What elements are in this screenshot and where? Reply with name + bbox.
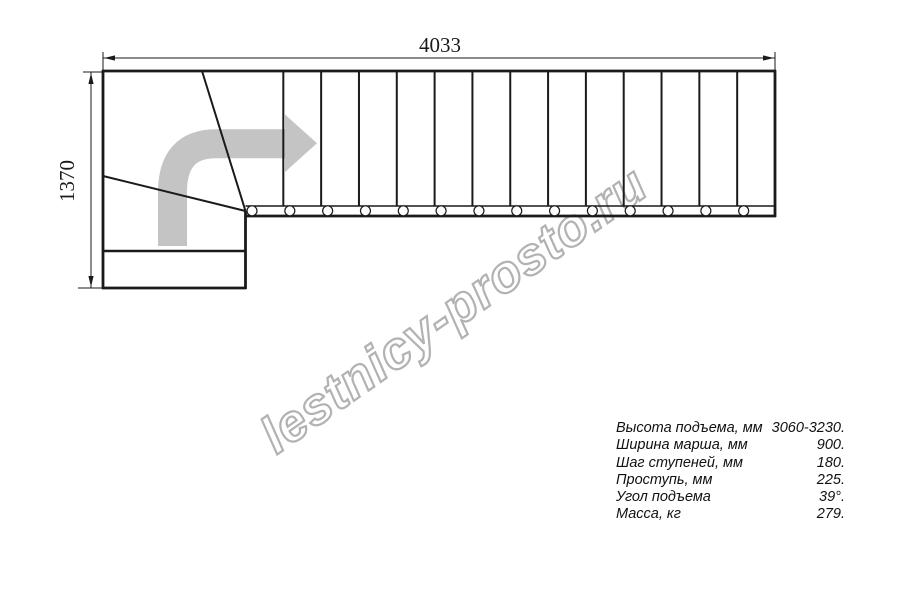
baluster-circle (739, 206, 749, 216)
spec-value: 225. (817, 472, 845, 489)
spec-row-tread: Проступь, мм 225. (616, 472, 845, 489)
dimension-width: 4033 (103, 33, 775, 71)
baluster-circle (701, 206, 711, 216)
dimension-height-label: 1370 (55, 160, 79, 202)
spec-value: 39°. (819, 489, 845, 506)
spec-label: Высота подъема, мм (616, 420, 763, 437)
dimension-width-label: 4033 (419, 33, 461, 57)
baluster-circle (360, 206, 370, 216)
baluster-circle (663, 206, 673, 216)
spec-row-mass: Масса, кг 279. (616, 506, 845, 523)
baluster-circle (436, 206, 446, 216)
spec-row-step-pitch: Шаг ступеней, мм 180. (616, 455, 845, 472)
baluster-circle (512, 206, 522, 216)
baluster-circle (398, 206, 408, 216)
spec-value: 900. (817, 437, 845, 454)
spec-label: Проступь, мм (616, 472, 712, 489)
tread-lines-and-balusters (247, 71, 749, 216)
spec-label: Шаг ступеней, мм (616, 455, 743, 472)
direction-arrow-head (285, 115, 317, 173)
staircase-plan (102, 70, 776, 289)
dim-arrow-right-icon (763, 55, 774, 60)
spec-row-flight-width: Ширина марша, мм 900. (616, 437, 845, 454)
dim-arrow-top-icon (88, 73, 93, 84)
baluster-circle (587, 206, 597, 216)
baluster-circle (474, 206, 484, 216)
stair-plan-canvas: lestnicy-prosto.ru (0, 0, 900, 600)
dimension-height: 1370 (55, 72, 103, 288)
spec-table: Высота подъема, мм 3060-3230. Ширина мар… (616, 420, 845, 524)
spec-value: 180. (817, 455, 845, 472)
dim-arrow-left-icon (104, 55, 115, 60)
dim-arrow-bottom-icon (88, 276, 93, 287)
baluster-circle (550, 206, 560, 216)
spec-value: 3060-3230. (772, 420, 845, 437)
baluster-circle (247, 206, 257, 216)
spec-label: Ширина марша, мм (616, 437, 748, 454)
spec-label: Масса, кг (616, 506, 681, 523)
spec-label: Угол подъема (616, 489, 711, 506)
spec-row-angle: Угол подъема 39°. (616, 489, 845, 506)
spec-row-height: Высота подъема, мм 3060-3230. (616, 420, 845, 437)
baluster-circle (625, 206, 635, 216)
spec-value: 279. (817, 506, 845, 523)
baluster-circle (285, 206, 295, 216)
baluster-circle (323, 206, 333, 216)
